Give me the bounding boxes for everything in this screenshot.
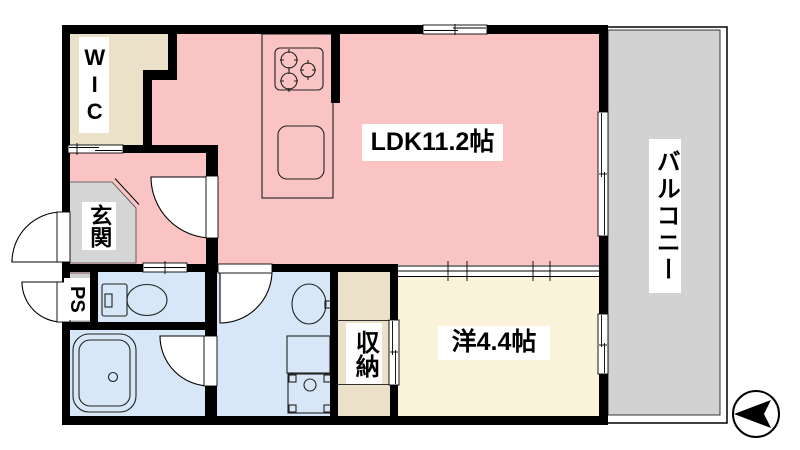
storage-door bbox=[389, 320, 399, 385]
ldk-balcony-window bbox=[598, 112, 608, 236]
top-window bbox=[423, 24, 487, 35]
ldk-label: LDK11.2帖 bbox=[362, 124, 503, 161]
floor-plan: WIC LDK11.2帖 バルコニー 玄関 PS 収納 洋4.4帖 bbox=[0, 0, 800, 450]
entrance-label: 玄関 bbox=[82, 202, 116, 250]
balcony-label: バルコニー bbox=[649, 139, 681, 293]
toilet-door bbox=[143, 261, 187, 274]
wic-sliding-door bbox=[68, 143, 123, 155]
compass-icon bbox=[733, 391, 779, 437]
washroom-door-leaf bbox=[218, 264, 272, 273]
front-door-leaf bbox=[57, 212, 70, 262]
western-balcony-window bbox=[598, 314, 608, 374]
front-door-swing bbox=[12, 212, 62, 262]
toilet-room-floor bbox=[90, 264, 217, 330]
ldk-door-leaf bbox=[206, 176, 218, 238]
pipe-space-label: PS bbox=[64, 278, 90, 320]
wic-label: WIC bbox=[79, 37, 109, 133]
ps-door-swing bbox=[22, 282, 62, 322]
western-room-label: 洋4.4帖 bbox=[438, 326, 550, 360]
storage-label: 収納 bbox=[346, 323, 382, 384]
bathroom-door-leaf bbox=[204, 336, 217, 386]
